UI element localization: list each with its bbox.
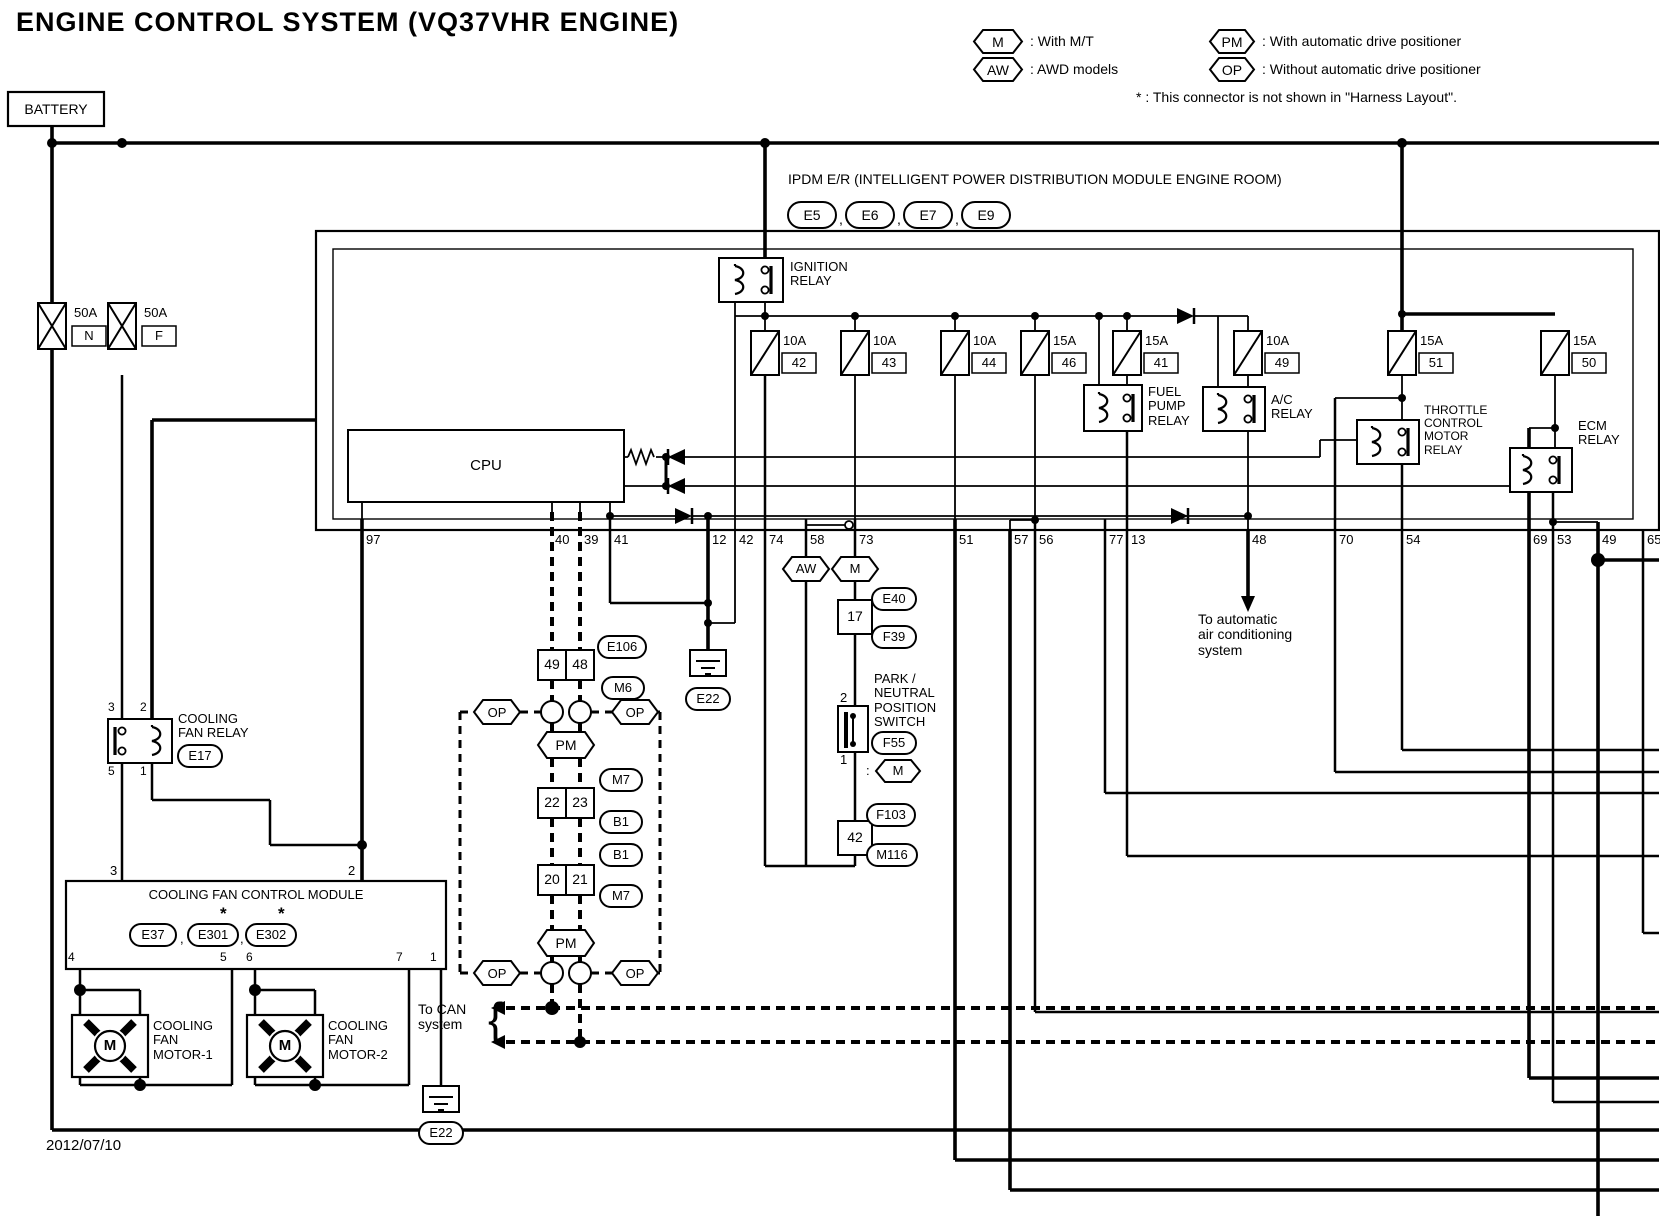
connector-b1-upper-label: B1: [600, 815, 642, 829]
m-option-label-2: M: [876, 764, 920, 778]
cooling-fan-relay-box: [108, 719, 172, 763]
can-cell-48: 48: [566, 657, 594, 672]
fuse-44-id: 44: [972, 356, 1006, 370]
connector-e5-label: E5: [788, 208, 836, 223]
can-cell-20: 20: [538, 872, 566, 887]
ecm-relay-box: [1510, 448, 1572, 492]
module-pin-7: 7: [396, 951, 403, 964]
pin-49: 49: [1602, 533, 1616, 547]
can-brace: {: [488, 996, 503, 1042]
cooling-fan-module-title: COOLING FAN CONTROL MODULE: [106, 888, 406, 902]
module-star-2: *: [278, 905, 285, 924]
module-sep-2: ,: [240, 932, 244, 946]
throttle-relay-box: [1357, 420, 1419, 464]
pin-97: 97: [366, 533, 380, 547]
connector-e37-label: E37: [130, 928, 176, 942]
fuse-46-id: 46: [1052, 356, 1086, 370]
connector-e302-label: E302: [246, 928, 296, 942]
fuse-51-amp: 15A: [1420, 334, 1443, 348]
connector-e301-label: E301: [188, 928, 238, 942]
fuse-50-amp: 15A: [1573, 334, 1596, 348]
m-option-label: M: [832, 562, 878, 576]
f55-colon: :: [866, 764, 870, 778]
ignition-relay-label: IGNITION RELAY: [790, 260, 848, 289]
fusible-f-amp: 50A: [144, 306, 167, 320]
page-title: ENGINE CONTROL SYSTEM (VQ37VHR ENGINE): [16, 8, 679, 38]
sep-3: ,: [955, 212, 959, 227]
connector-m116-label: M116: [867, 848, 917, 862]
connector-e40-label: E40: [872, 592, 916, 606]
date-stamp: 2012/07/10: [46, 1138, 121, 1155]
pin-41: 41: [614, 533, 628, 547]
fusible-f-id: F: [142, 329, 176, 343]
pin-51: 51: [959, 533, 973, 547]
sep-1: ,: [839, 212, 843, 227]
can-wires: [506, 512, 1659, 1042]
pin-42: 42: [739, 533, 753, 547]
legend-pm-symbol: PM: [1210, 35, 1254, 50]
legend-op-symbol: OP: [1210, 63, 1254, 78]
module-pin-1: 1: [430, 951, 437, 964]
motor-2-m: M: [271, 1038, 299, 1055]
pin-39: 39: [584, 533, 598, 547]
legend-pm-text: : With automatic drive positioner: [1262, 34, 1461, 49]
pin-40: 40: [555, 533, 569, 547]
connector-e6-label: E6: [846, 208, 894, 223]
fuse-49-id: 49: [1265, 356, 1299, 370]
can-cell-21: 21: [566, 872, 594, 887]
fuse-42-id: 42: [782, 356, 816, 370]
pin-65: 65: [1647, 533, 1660, 547]
op-label-4: OP: [612, 967, 658, 981]
module-sep-1: ,: [180, 932, 184, 946]
module-pin-6: 6: [246, 951, 253, 964]
connector-m7-upper-label: M7: [600, 773, 642, 787]
ac-relay-label: A/C RELAY: [1271, 393, 1313, 422]
fusible-n-amp: 50A: [74, 306, 97, 320]
throttle-relay-label: THROTTLE CONTROL MOTOR RELAY: [1424, 404, 1487, 457]
connector-m7-lower-label: M7: [600, 889, 642, 903]
to-can-note: To CAN system: [418, 1002, 466, 1033]
fan-relay-pin-1: 1: [140, 765, 147, 778]
connector-e106-label: E106: [598, 640, 646, 654]
fuse-42-amp: 10A: [783, 334, 806, 348]
fan-relay-pin-5: 5: [108, 765, 115, 778]
aw-option-label: AW: [783, 562, 829, 576]
pin-54: 54: [1406, 533, 1420, 547]
legend-m-text: : With M/T: [1030, 34, 1094, 49]
connector-e9-label: E9: [962, 208, 1010, 223]
module-pin-2: 2: [348, 864, 355, 878]
pm-label-1: PM: [538, 738, 594, 753]
pin-77: 77: [1109, 533, 1123, 547]
connector-e17-label: E17: [178, 749, 222, 763]
connector-f39-label: F39: [872, 630, 916, 644]
pin-70: 70: [1339, 533, 1353, 547]
fuse-46-amp: 15A: [1053, 334, 1076, 348]
connector-42-label: 42: [838, 830, 872, 845]
module-pin-5: 5: [220, 951, 227, 964]
fan-relay-pin-2: 2: [140, 701, 147, 714]
pn-pin-2: 2: [840, 691, 847, 705]
ignition-relay-box: [719, 258, 783, 302]
connector-17-label: 17: [838, 609, 872, 624]
connector-b1-lower-label: B1: [600, 848, 642, 862]
ipdm-title: IPDM E/R (INTELLIGENT POWER DISTRIBUTION…: [788, 172, 1282, 187]
to-ac-note: To automatic air conditioning system: [1198, 612, 1292, 658]
cooling-fan-relay-label: COOLING FAN RELAY: [178, 712, 249, 741]
fuse-44-amp: 10A: [973, 334, 996, 348]
fuel-pump-relay-label: FUEL PUMP RELAY: [1148, 385, 1190, 428]
fuse-51-id: 51: [1419, 356, 1453, 370]
pin-56: 56: [1039, 533, 1053, 547]
op-label-1: OP: [474, 706, 520, 720]
cooling-fan-motor-2-label: COOLING FAN MOTOR-2: [328, 1019, 388, 1062]
module-pin-3: 3: [110, 864, 117, 878]
cooling-fan-motor-1-label: COOLING FAN MOTOR-1: [153, 1019, 213, 1062]
battery-label: BATTERY: [8, 102, 104, 117]
legend-star-note: * : This connector is not shown in "Harn…: [1136, 90, 1457, 105]
pin-53: 53: [1557, 533, 1571, 547]
sep-2: ,: [897, 212, 901, 227]
connector-f55-label: F55: [872, 736, 916, 750]
connector-f103-label: F103: [867, 808, 915, 822]
connector-m6-label: M6: [602, 681, 644, 695]
fuse-43-id: 43: [872, 356, 906, 370]
legend-m-symbol: M: [974, 35, 1022, 50]
fuse-50-id: 50: [1572, 356, 1606, 370]
fusible-n-id: N: [72, 329, 106, 343]
pn-switch-label: PARK / NEUTRAL POSITION SWITCH: [874, 672, 936, 729]
wiring-diagram-page: ENGINE CONTROL SYSTEM (VQ37VHR ENGINE) M…: [0, 0, 1660, 1216]
pin-48: 48: [1252, 533, 1266, 547]
connector-e7-label: E7: [904, 208, 952, 223]
motor-1-m: M: [96, 1038, 124, 1055]
can-cell-23: 23: [566, 795, 594, 810]
pin-73: 73: [859, 533, 873, 547]
op-label-3: OP: [474, 967, 520, 981]
pin-57: 57: [1014, 533, 1028, 547]
ecm-relay-label: ECM RELAY: [1578, 419, 1620, 448]
fuse-41-amp: 15A: [1145, 334, 1168, 348]
op-label-2: OP: [612, 706, 658, 720]
legend-op-text: : Without automatic drive positioner: [1262, 62, 1481, 77]
cpu-label: CPU: [348, 458, 624, 475]
pin-58: 58: [810, 533, 824, 547]
fuse-41-id: 41: [1144, 356, 1178, 370]
pin-74: 74: [769, 533, 783, 547]
ground-e22-mid-label: E22: [686, 692, 730, 706]
pm-label-2: PM: [538, 936, 594, 951]
can-cell-22: 22: [538, 795, 566, 810]
module-star-1: *: [220, 905, 227, 924]
ac-relay-box: [1203, 387, 1265, 431]
pin-13: 13: [1131, 533, 1145, 547]
module-pin-4: 4: [68, 951, 75, 964]
ground-e22-bottom-label: E22: [419, 1126, 463, 1140]
pin-12: 12: [712, 533, 726, 547]
legend-aw-text: : AWD models: [1030, 62, 1118, 77]
legend-aw-symbol: AW: [974, 63, 1022, 78]
pn-pin-1: 1: [840, 753, 847, 767]
fuse-43-amp: 10A: [873, 334, 896, 348]
fuse-49-amp: 10A: [1266, 334, 1289, 348]
can-cell-49: 49: [538, 657, 566, 672]
fan-relay-pin-3: 3: [108, 701, 115, 714]
pin-69: 69: [1533, 533, 1547, 547]
